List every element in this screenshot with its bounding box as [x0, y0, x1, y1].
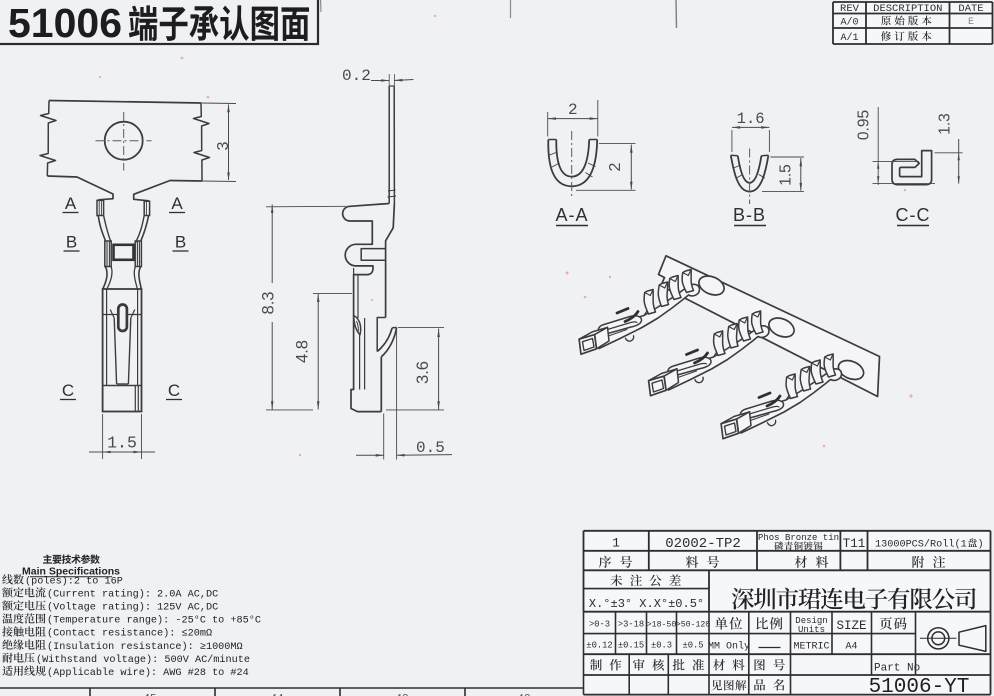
- svg-text:0.5: 0.5: [416, 439, 445, 457]
- svg-text:X.°±3° X.X°±0.5°: X.°±3° X.X°±0.5°: [589, 597, 704, 611]
- svg-text:(Insulation resistance): ≥1000: (Insulation resistance): ≥1000MΩ: [47, 641, 243, 653]
- svg-text:>0-3: >0-3: [589, 620, 610, 630]
- svg-text:SIZE: SIZE: [836, 619, 866, 633]
- svg-text:A-A: A-A: [555, 205, 588, 225]
- svg-text:1.5: 1.5: [107, 434, 137, 453]
- svg-text:REV: REV: [840, 3, 860, 15]
- svg-text:±0.3: ±0.3: [651, 641, 672, 651]
- svg-text:51006-YT: 51006-YT: [869, 676, 970, 696]
- svg-text:C: C: [62, 381, 74, 400]
- svg-text:(Withstand voltage): 500V AC/m: (Withstand voltage): 500V AC/minute: [36, 654, 250, 666]
- svg-text:A: A: [171, 194, 183, 213]
- svg-text:Part No: Part No: [874, 663, 920, 675]
- svg-text:(Voltage rating): 125V AC,DC: (Voltage rating): 125V AC,DC: [47, 602, 218, 614]
- svg-text:8.3: 8.3: [260, 292, 278, 315]
- svg-text:): ): [978, 539, 984, 551]
- svg-text:DESCRIPTION: DESCRIPTION: [873, 3, 942, 15]
- svg-text:A4: A4: [845, 642, 857, 653]
- svg-text:Phos Bronze tin: Phos Bronze tin: [758, 533, 839, 543]
- svg-text:C: C: [168, 381, 180, 400]
- svg-text:±0.15: ±0.15: [618, 641, 644, 651]
- svg-text:B: B: [175, 233, 186, 252]
- svg-text:0.95: 0.95: [856, 110, 873, 140]
- svg-text:>3-18: >3-18: [618, 620, 644, 630]
- svg-text:(poles):2 to 16P: (poles):2 to 16P: [25, 576, 123, 588]
- svg-text:(Contact resistance): ≤20mΩ: (Contact resistance): ≤20mΩ: [47, 628, 212, 640]
- svg-text:C-C: C-C: [896, 205, 931, 225]
- svg-text:0.2: 0.2: [342, 67, 371, 85]
- svg-text:13000PCS/Roll(1: 13000PCS/Roll(1: [875, 539, 967, 551]
- svg-text:(Current rating): 2.0A AC,DC: (Current rating): 2.0A AC,DC: [47, 589, 218, 601]
- svg-text:1: 1: [612, 536, 620, 551]
- svg-text:DATE: DATE: [958, 3, 983, 15]
- svg-text:E: E: [968, 17, 974, 28]
- svg-text:(Applicable wire): AWG #28 to: (Applicable wire): AWG #28 to #24: [47, 667, 249, 679]
- svg-text:A/0: A/0: [840, 17, 858, 29]
- svg-text:2: 2: [568, 101, 578, 119]
- svg-text:±0.5: ±0.5: [682, 641, 703, 651]
- svg-text:>50-120: >50-120: [676, 621, 710, 630]
- svg-text:1.3: 1.3: [937, 113, 954, 135]
- svg-text:1.6: 1.6: [737, 110, 765, 128]
- svg-text:3: 3: [215, 141, 232, 150]
- svg-text:2: 2: [607, 162, 624, 171]
- svg-text:MM Only: MM Only: [708, 641, 750, 653]
- svg-text:T11: T11: [843, 537, 866, 551]
- svg-text:>18-50: >18-50: [647, 621, 677, 630]
- svg-text:51006: 51006: [8, 0, 122, 46]
- svg-text:B-B: B-B: [733, 205, 766, 225]
- svg-text:1.5: 1.5: [778, 164, 795, 186]
- svg-text:A: A: [65, 194, 77, 213]
- svg-text:02002-TP2: 02002-TP2: [665, 536, 741, 552]
- svg-text:Units: Units: [798, 625, 825, 635]
- svg-text:A/1: A/1: [840, 32, 858, 44]
- svg-text:(Temperature range): -25°C to: (Temperature range): -25°C to +85°C: [47, 615, 261, 627]
- svg-text:4.8: 4.8: [294, 340, 312, 363]
- svg-text:±0.12: ±0.12: [586, 641, 612, 651]
- svg-text:METRIC: METRIC: [793, 642, 829, 653]
- svg-text:B: B: [66, 233, 77, 252]
- svg-text:3.6: 3.6: [414, 361, 432, 384]
